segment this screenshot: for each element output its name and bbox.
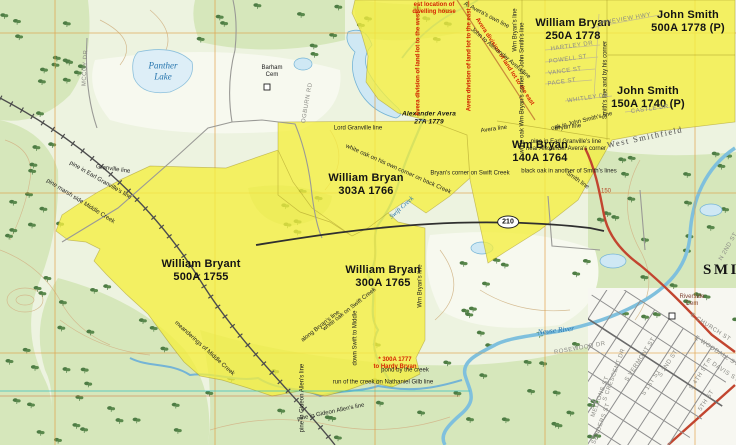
black-annotation: Smith's line and by his corner [602,41,609,119]
street-label: MELLONS ST [590,376,611,419]
black-annotation: Avera line [480,125,507,136]
water-label: Neuse River [537,325,574,338]
black-annotation: meanderings of Middle Creek [173,320,236,378]
black-annotation: Wm Bryan's line [417,264,424,307]
water-label: Swift Creek [388,195,415,221]
black-annotation: A. Avera's own line [462,1,510,31]
black-annotation: along Bryan's line [300,310,342,345]
street-label: S 1ST ST [641,369,663,398]
black-annotation: white oak on his own corner on back Cree… [344,143,452,196]
black-annotation: pine marsh side Middle Creek [44,178,115,226]
street-label: POWELL ST [548,54,587,66]
black-annotation: Bryan's corner on Swift Creek [430,170,509,177]
black-annotation: oak in John Smith's line [551,111,614,133]
black-annotation: run of the creek on Nathaniel Gilb line [333,379,433,386]
black-annotation: Bryan line [554,123,581,133]
street-label: S 2ND ST [658,349,681,379]
street-label: CASTLE DR [631,104,670,116]
grant-label: William Bryan 300A 1765 [345,264,420,290]
red-annotation: Avera division of land lot to the west — [415,4,422,116]
black-annotation: Granville line [95,164,130,176]
street-label: S CRESCENT DR [602,348,628,402]
black-annotation: white oak Wm Bryan's corner in John Smit… [519,22,526,153]
black-annotation: pine in Earl Granville's line near Alexa… [526,139,606,153]
black-annotation: pine in Gideon Allen's line [297,402,366,423]
street-label: OGBURN RD [301,82,315,124]
black-annotation: white oak on Swift Creek [322,287,378,333]
black-annotation: Wm Bryan's line [512,8,519,51]
red-annotation: Avera division of land lot to the east [473,17,535,107]
grant-label: John Smith 150A 1740 (P) [611,85,685,111]
street-label: ROSEWOOD DR [554,341,607,357]
street-label: WHITLEY DR [567,93,609,106]
cemetery-label: Riverside Cem [679,294,704,308]
topo-map: William Bryan 250A 1778John Smith 500A 1… [0,0,736,445]
street-label: MCCOY DR [82,50,91,87]
grant-label: John Smith 500A 1778 (P) [651,9,725,35]
street-label: HARTLEY DR [550,41,593,54]
red-annotation: est location of dwelling house [412,2,455,16]
street-label: E CHURCH ST [689,312,732,343]
place-label: SMITHFIELD [703,262,736,280]
grant-label: William Bryan 250A 1778 [535,17,610,43]
black-annotation: pine in Earl Granville's line [68,160,133,201]
grant-label: William Bryan 303A 1766 [328,172,403,198]
grant-label: Wm Bryan 140A 1764 [512,139,568,165]
red-annotation: * 300A 1777 to Hardy Bryan [373,357,416,371]
place-label: West Smithfield [606,124,684,150]
grant-label: Alexander Avera 27A 1779 [402,110,456,125]
black-annotation: Lord Granville line [334,125,382,132]
street-label: N 2ND ST [718,232,736,263]
street-label: S VERMONT ST [624,337,658,384]
grant-label: William Bryant 500A 1755 [161,258,240,284]
black-annotation: pine in Gideon Allen's line [299,364,306,433]
street-label: SANDERS ST [591,402,612,445]
red-annotation: Avera division of land lot to the east — [466,1,473,111]
map-labels: William Bryan 250A 1778John Smith 500A 1… [0,0,736,445]
street-label: E WOODALL ST [693,335,736,369]
route-210-shield: 210 [497,216,519,229]
street-label: 5TH ST [698,389,717,413]
water-label: Panther Lake [149,60,178,81]
black-annotation: pond by the creek [381,367,429,374]
contour-label: 150 [601,188,611,195]
black-annotation: down Swift to Middle [352,310,359,365]
black-annotation: black oak in another of Smith's lines [521,168,617,175]
cemetery-label: Barham Cem [261,65,282,79]
street-label: E DAVIS ST [704,358,736,384]
street-label: PACE ST [547,77,576,88]
black-annotation: John to Alexander Avera line [469,27,532,81]
black-annotation: Smith line [564,171,590,192]
street-label: VANCE ST [548,66,582,78]
street-label: S 4TH ST [689,362,711,391]
street-label: PINEVIEW HWY [600,12,651,28]
